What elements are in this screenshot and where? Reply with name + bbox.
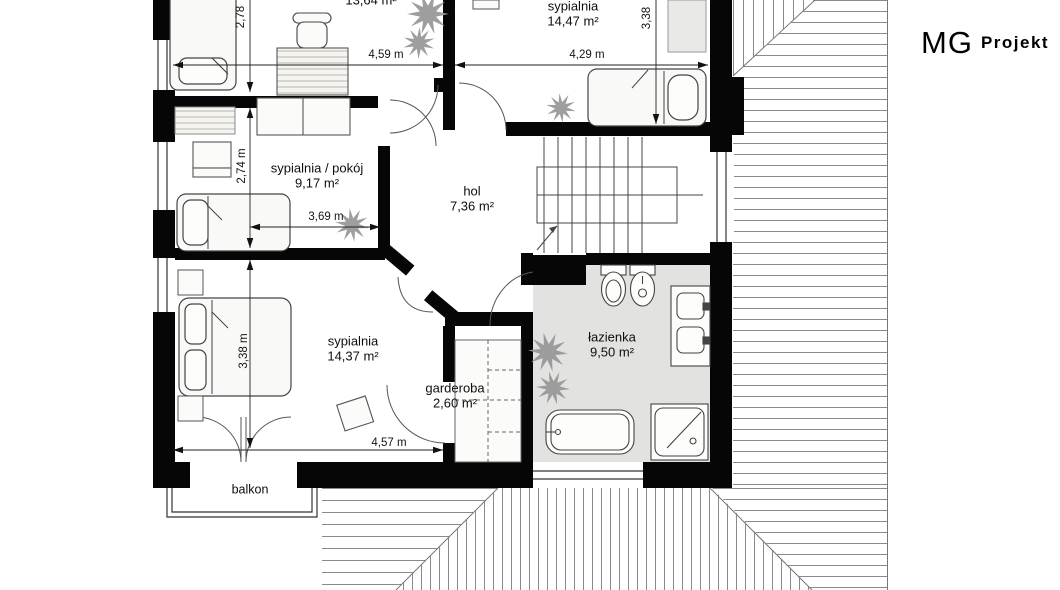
- staircase: [537, 137, 703, 253]
- shower-icon: [651, 404, 708, 460]
- logo-mg: MG: [921, 27, 973, 58]
- door-balcony-left: [196, 417, 241, 462]
- room-label-bedroom-office: sypialnia / pokój 9,17 m²: [271, 161, 364, 192]
- dimension-middle-width: 3,69 m: [308, 211, 343, 223]
- logo-projekt: Projekt: [981, 34, 1049, 51]
- washbasin-icon: [671, 286, 710, 366]
- bed-icon: [588, 69, 706, 126]
- room-label-hall: hol 7,36 m²: [450, 184, 494, 215]
- bidet-icon: [630, 265, 655, 306]
- mg-projekt-logo: MG Projekt: [921, 27, 1049, 58]
- room-label-top-left-area: 13,64 m²: [345, 0, 396, 8]
- rug-icon: [175, 107, 235, 134]
- pouf-icon: [337, 396, 374, 431]
- nightstand-icon: [178, 396, 203, 421]
- desk-icon: [277, 48, 348, 95]
- bed-icon: [170, 0, 236, 90]
- dimension-middle-depth: 2,74 m: [236, 148, 248, 183]
- wardrobe-icon: [257, 98, 350, 135]
- room-label-bedroom-top-right: sypialnia 14,47 m²: [547, 0, 598, 29]
- nightstand-icon: [178, 270, 203, 295]
- window-right-stairs: [710, 152, 734, 242]
- dimension-top-left-width: 4,59 m: [368, 49, 403, 61]
- room-label-wardrobe: garderoba 2,60 m²: [425, 381, 484, 412]
- window-bathroom: [533, 464, 643, 486]
- dimension-top-right-depth: 3,38: [641, 7, 653, 29]
- bed-icon: [177, 194, 290, 251]
- dimension-top-right-width: 4,29 m: [569, 49, 604, 61]
- door-top-left-room: [390, 85, 438, 133]
- dimension-top-left-depth: 2,78: [235, 6, 247, 28]
- wardrobe-icon: [668, 0, 706, 52]
- double-bed-icon: [179, 298, 291, 396]
- room-label-bathroom: łazienka 9,50 m²: [588, 330, 636, 361]
- toilet-icon: [601, 265, 626, 306]
- door-top-right-room: [459, 83, 506, 130]
- room-label-balcony: balkon: [232, 483, 269, 498]
- floor-plan-canvas: 13,64 m² sypialnia 14,47 m² sypialnia / …: [0, 0, 1060, 590]
- door-middle-room: [390, 100, 436, 146]
- room-label-bedroom-main: sypialnia 14,37 m²: [327, 334, 378, 365]
- desk-icon: [193, 142, 231, 177]
- floor-plan-drawing: [0, 0, 1060, 590]
- dimension-bottom-depth: 3,38 m: [238, 333, 250, 368]
- chair-icon: [293, 13, 331, 48]
- window-left-3: [151, 258, 175, 312]
- cabinet-icon: [473, 0, 499, 9]
- bathtub-icon: [546, 410, 634, 454]
- window-left-2: [151, 142, 175, 210]
- dimension-bottom-width: 4,57 m: [371, 437, 406, 449]
- door-bedroom-main: [398, 277, 433, 312]
